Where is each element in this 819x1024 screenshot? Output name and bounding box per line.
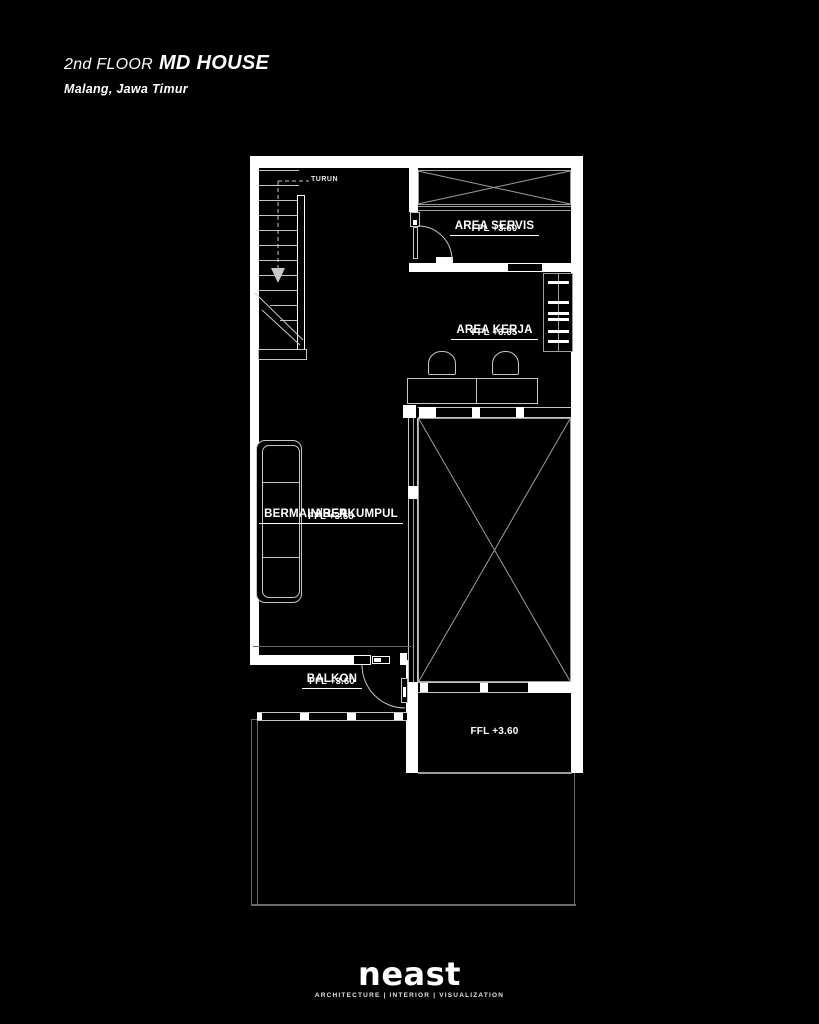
studio-logo: neast (0, 958, 819, 990)
studio-tagline: ARCHITECTURE | INTERIOR | VISUALIZATION (0, 992, 819, 999)
room-ffl: FFL +3.65 (472, 327, 518, 338)
drying-rack-x (418, 171, 570, 204)
stair-break-line (255, 293, 303, 340)
room-ffl: FFL +3.60 (470, 726, 518, 737)
drawing-title: 2nd FLOORMD HOUSE (64, 52, 269, 75)
stair-break-line (262, 310, 300, 345)
floor-plan: TURUN (250, 156, 583, 908)
plan-linework-overlay (250, 156, 583, 908)
floor-label: 2nd FLOOR (64, 56, 153, 73)
door-swing-servis (418, 226, 452, 260)
down-arrow-icon (271, 268, 285, 283)
void-x (419, 419, 570, 681)
studio-logo-block: neast ARCHITECTURE | INTERIOR | VISUALIZ… (0, 958, 819, 999)
drawing-title-block: 2nd FLOORMD HOUSE Malang, Jawa Timur (64, 52, 269, 96)
door-swing-balkon (362, 665, 405, 708)
project-name: MD HOUSE (159, 52, 269, 74)
project-location: Malang, Jawa Timur (64, 82, 269, 96)
room-ffl: FFL +3.60 (472, 223, 518, 234)
room-ffl: FFL +3.65 (308, 511, 354, 522)
screenshot-page: 2nd FLOORMD HOUSE Malang, Jawa Timur (0, 0, 819, 1024)
room-ffl: FFL +3.60 (309, 676, 355, 687)
